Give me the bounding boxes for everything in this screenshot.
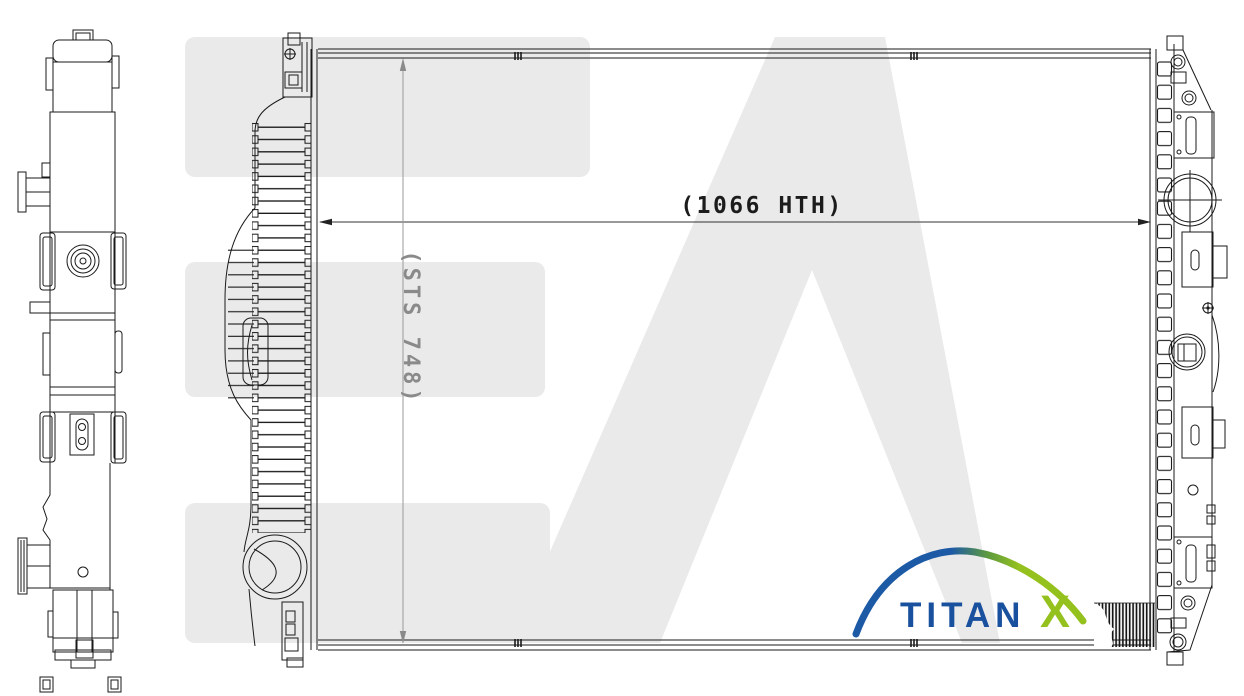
dim-arrow-left bbox=[319, 219, 332, 225]
radiator-technical-drawing: (1066 HTH) (STS 748) TITAN X bbox=[0, 0, 1244, 696]
titanx-logo-text: TITAN bbox=[900, 596, 1025, 635]
side-inlet-pipe bbox=[18, 172, 50, 212]
side-lower-tank bbox=[40, 590, 121, 692]
right-mount-bracket-lower bbox=[1182, 407, 1225, 458]
right-slot-plate-bottom bbox=[1174, 505, 1215, 588]
core-fins bbox=[1094, 603, 1155, 647]
left-tank-ribs bbox=[252, 121, 311, 533]
side-mount-pad bbox=[40, 233, 55, 290]
side-upper-neck bbox=[53, 62, 112, 112]
side-outlet-pipe bbox=[18, 538, 50, 594]
side-mount-pad bbox=[111, 233, 126, 289]
right-slot-plate-top bbox=[1174, 112, 1214, 158]
right-mount-bracket-upper bbox=[1182, 232, 1227, 287]
radiator-drawing-page: (1066 HTH) (STS 748) TITAN X bbox=[0, 0, 1244, 696]
side-mount-pad bbox=[111, 412, 126, 463]
side-top-cap bbox=[53, 40, 112, 62]
right-tank bbox=[1157, 36, 1227, 665]
side-upper-tank bbox=[50, 112, 115, 232]
side-slot-plate bbox=[70, 414, 94, 455]
right-tank-rungs bbox=[1157, 58, 1173, 640]
side-view bbox=[18, 30, 126, 692]
right-top-chimney bbox=[1167, 36, 1183, 50]
dimension-width-label: (1066 HTH) bbox=[680, 193, 843, 219]
dimension-height-label: (STS 748) bbox=[398, 250, 423, 405]
side-mount-pad bbox=[40, 412, 55, 462]
dim-arrow-right bbox=[1138, 219, 1151, 225]
side-cap-boss bbox=[67, 245, 99, 277]
side-mid-body bbox=[50, 232, 115, 412]
titanx-logo-x: X bbox=[1040, 586, 1070, 637]
right-bottom-chimney bbox=[1167, 652, 1183, 665]
